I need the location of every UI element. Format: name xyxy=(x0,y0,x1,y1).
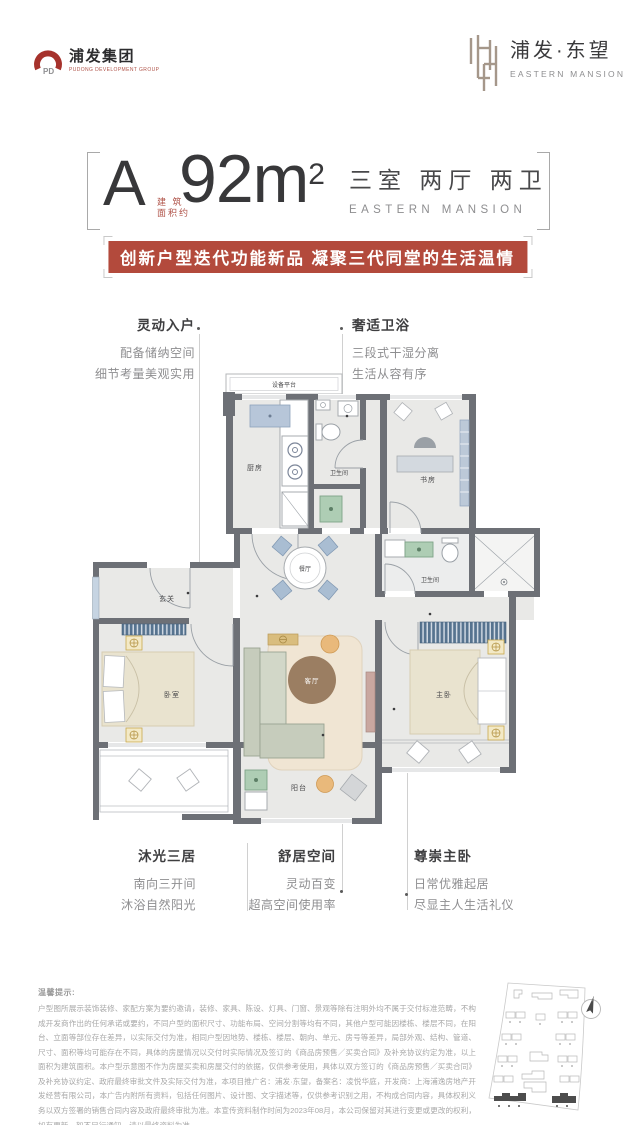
leader-dot xyxy=(340,327,343,330)
banner-corner-icon xyxy=(103,269,112,278)
room-label-equipment: 设备平台 xyxy=(272,381,296,389)
callout-master-lines: 日常优雅起居尽显主人生活礼仪 xyxy=(414,874,564,916)
equipment-platform: 设备平台 xyxy=(226,374,342,394)
wardrobe xyxy=(122,624,186,635)
room-label-dining: 餐厅 xyxy=(299,565,311,573)
layout-summary: 三室 两厅 两卫 EASTERN MANSION xyxy=(349,161,548,216)
disclaimer-title: 温馨提示: xyxy=(38,987,476,998)
disclaimer-body: 户型图所展示装饰装修、家配方案为要约邀请，装修、家具、陈设、灯具、门窗、景观等除… xyxy=(38,1002,476,1125)
poster: PD 浦发集团 PUDONG DEVELOPMENT GROUP 浦发·东望 E… xyxy=(0,0,635,1125)
callout-living-title: 舒居空间 xyxy=(200,845,336,865)
callout-bedrooms: 沐光三居 南向三开间沐浴自然阳光 xyxy=(58,845,196,916)
leader-dot xyxy=(197,327,200,330)
project-logo: 浦发·东望 EASTERN MANSION xyxy=(466,34,625,92)
toilet xyxy=(442,544,458,562)
banner-corner-icon xyxy=(523,269,532,278)
group-logo: PD 浦发集团 PUDONG DEVELOPMENT GROUP xyxy=(33,45,159,77)
callout-master: 尊崇主卧 日常优雅起居尽显主人生活礼仪 xyxy=(414,845,564,916)
callout-entry-title: 灵动入户 xyxy=(40,314,195,334)
side-table xyxy=(321,635,339,653)
room-label-living: 客厅 xyxy=(305,676,320,685)
desk xyxy=(397,456,453,472)
room-label-balcony: 阳台 xyxy=(291,783,307,792)
room-label-foyer: 玄关 xyxy=(159,594,175,603)
toilet xyxy=(322,424,340,440)
room-label-study: 书房 xyxy=(420,475,436,484)
sofa-back xyxy=(244,648,260,756)
sofa-chaise xyxy=(260,724,324,758)
room-label-bath1: 卫生间 xyxy=(330,469,348,477)
project-logo-tagline: EASTERN MANSION xyxy=(510,69,625,79)
callout-living: 舒居空间 灵动百变超高空间使用率 xyxy=(200,845,336,916)
pillow-icon xyxy=(103,655,125,687)
tv-console xyxy=(366,672,375,732)
banner-corner-icon xyxy=(103,236,112,245)
slogan-text: 创新户型迭代功能新品 凝聚三代同堂的生活温情 xyxy=(120,250,515,268)
callout-living-l2: 超高空间使用率 xyxy=(248,898,336,912)
living-furniture: 客厅 xyxy=(244,634,375,770)
leader-dot xyxy=(340,890,343,893)
leader-line xyxy=(247,843,248,911)
project-logo-name: 浦发·东望 xyxy=(510,34,625,63)
callout-living-l1: 灵动百变 xyxy=(286,877,336,891)
callout-living-lines: 灵动百变超高空间使用率 xyxy=(200,874,336,916)
bath1-sink xyxy=(338,401,358,416)
group-logo-arc-icon: PD xyxy=(33,45,63,77)
callout-bedrooms-lines: 南向三开间沐浴自然阳光 xyxy=(58,874,196,916)
group-logo-monogram: PD xyxy=(43,67,54,76)
headline-bracket-left xyxy=(87,152,100,230)
layout-rooms: 三室 两厅 两卫 xyxy=(349,161,548,195)
master-furniture: 主卧 xyxy=(410,622,506,740)
group-logo-tagline: PUDONG DEVELOPMENT GROUP xyxy=(69,67,159,73)
room-label-kitchen: 厨房 xyxy=(247,463,263,472)
compass-icon xyxy=(578,993,604,1023)
foyer-window xyxy=(93,577,100,619)
room-label-bedroom: 卧室 xyxy=(164,690,180,699)
area-superscript: 2 xyxy=(308,158,325,191)
plant xyxy=(317,776,334,793)
callout-bath-l1: 三段式干湿分离 xyxy=(352,346,440,360)
callout-bath-title: 奢适卫浴 xyxy=(352,314,512,334)
callout-entry-l1: 配备储纳空间 xyxy=(120,346,195,360)
disclaimer: 温馨提示: 户型图所展示装饰装修、家配方案为要约邀请，装修、家具、陈设、灯具、门… xyxy=(38,987,476,1125)
callout-bedrooms-l2: 沐浴自然阳光 xyxy=(121,898,196,912)
pillow-icon xyxy=(103,690,125,722)
floorplan-svg: 设备平台 xyxy=(92,372,544,837)
bookshelf xyxy=(460,420,469,506)
area-value: 92m2 xyxy=(179,140,325,218)
group-logo-name: 浦发集团 xyxy=(69,49,159,64)
callout-bedrooms-l1: 南向三开间 xyxy=(133,877,196,891)
area-number: 92m xyxy=(179,141,308,217)
banner-corner-icon xyxy=(523,236,532,245)
room-label-bath2: 卫生间 xyxy=(421,576,439,584)
project-monogram-icon xyxy=(466,34,500,92)
room-label-master: 主卧 xyxy=(436,690,452,699)
callout-master-l1: 日常优雅起居 xyxy=(414,877,489,891)
callout-bedrooms-title: 沐光三居 xyxy=(58,845,196,865)
slogan-banner: 创新户型迭代功能新品 凝聚三代同堂的生活温情 xyxy=(108,241,527,273)
layout-rooms-sub: EASTERN MANSION xyxy=(349,204,548,216)
callout-master-l2: 尽显主人生活礼仪 xyxy=(414,898,514,912)
unit-letter: A xyxy=(103,146,146,220)
callout-master-title: 尊崇主卧 xyxy=(414,845,564,865)
leader-dot xyxy=(405,893,408,896)
